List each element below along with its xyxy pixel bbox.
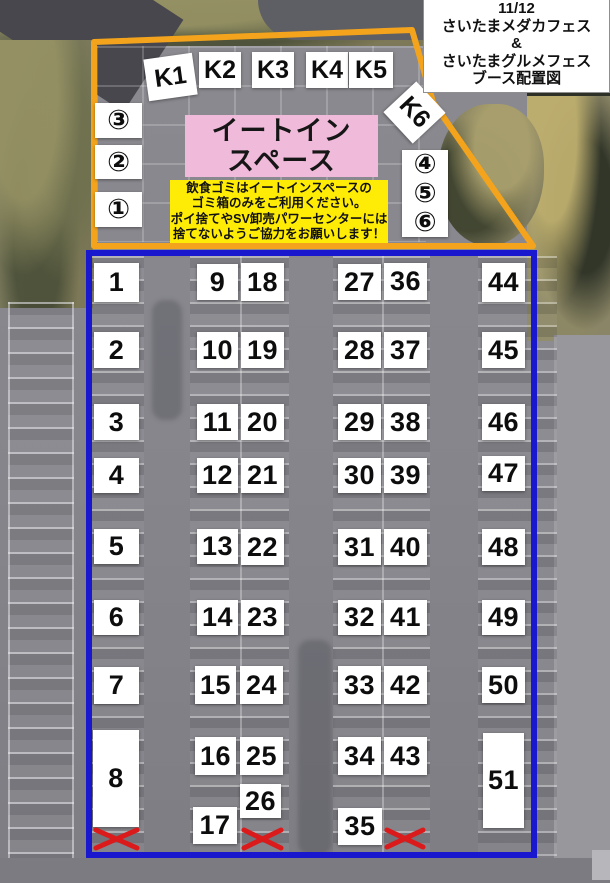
event-name-1: さいたまメダカフェス (442, 18, 592, 36)
booth-26: 26 (240, 784, 281, 818)
closed-x-mark-1 (93, 827, 140, 851)
booth-44: 44 (482, 263, 525, 302)
kitchen-car-spot-3: ③ (95, 103, 142, 138)
booth-48: 48 (482, 529, 525, 565)
booth-38: 38 (384, 404, 427, 440)
kitchen-car-spots-4-5-6: ④ ⑤ ⑥ (402, 150, 448, 237)
booth-27: 27 (338, 264, 381, 300)
booth-42: 42 (384, 666, 427, 704)
car-bottom-right (592, 850, 610, 880)
kitchen-car-spot-2: ② (95, 145, 142, 179)
kitchen-car-spot-4: ④ (414, 150, 437, 179)
booth-8: 8 (93, 730, 139, 827)
booth-24: 24 (240, 666, 283, 704)
booth-20: 20 (241, 404, 284, 440)
booth-1: 1 (94, 263, 139, 302)
booth-47: 47 (482, 456, 525, 491)
booth-15: 15 (195, 666, 236, 704)
booth-4: 4 (94, 458, 139, 493)
booth-13: 13 (197, 529, 238, 564)
booth-32: 32 (338, 600, 381, 635)
event-name-2: さいたまグルメフェス (442, 53, 592, 71)
kiosk-k3: K3 (252, 52, 294, 88)
booth-35: 35 (338, 808, 382, 845)
booth-6: 6 (94, 600, 139, 635)
notice-line: ポイ捨てやSV卸売パワーセンターには (171, 212, 388, 227)
booth-9: 9 (197, 264, 238, 300)
booth-5: 5 (94, 529, 139, 564)
booth-16: 16 (195, 737, 236, 775)
booth-41: 41 (384, 600, 427, 635)
kitchen-car-spot-5: ⑤ (414, 179, 437, 208)
booth-10: 10 (197, 332, 238, 368)
trash-notice: 飲食ゴミはイートインスペースの ゴミ箱のみをご利用ください。 ポイ捨てやSV卸売… (170, 180, 388, 243)
eat-in-line2: スペース (227, 146, 336, 176)
booth-34: 34 (338, 737, 381, 775)
eat-in-line1: イートイン (212, 116, 352, 146)
booth-40: 40 (384, 529, 427, 565)
kiosk-k5: K5 (349, 52, 393, 88)
event-date: 11/12 (498, 0, 535, 18)
booth-30: 30 (338, 458, 381, 493)
booth-3: 3 (94, 404, 139, 440)
booth-36: 36 (384, 263, 427, 300)
booth-46: 46 (482, 404, 525, 440)
notice-line: 捨てないようご協力をお願いします！ (173, 227, 385, 242)
booth-7: 7 (94, 667, 139, 704)
booth-33: 33 (338, 666, 381, 704)
booth-25: 25 (240, 737, 283, 775)
booth-19: 19 (241, 332, 284, 368)
notice-line: ゴミ箱のみをご利用ください。 (191, 196, 366, 211)
booth-49: 49 (482, 600, 525, 635)
booth-14: 14 (197, 600, 238, 635)
booth-layout-map: イートイン スペース 飲食ゴミはイートインスペースの ゴミ箱のみをご利用ください… (0, 0, 610, 883)
booth-31: 31 (338, 529, 381, 565)
booth-17: 17 (193, 807, 237, 844)
booth-12: 12 (197, 458, 238, 493)
notice-line: 飲食ゴミはイートインスペースの (186, 181, 372, 196)
kiosk-k1: K1 (143, 53, 197, 101)
event-amp: & (511, 35, 522, 53)
booth-22: 22 (241, 529, 284, 565)
asphalt-bottom (0, 858, 610, 883)
road-top-center (258, 0, 448, 40)
kiosk-k4: K4 (306, 52, 348, 88)
vegetation-left (0, 40, 93, 308)
booth-2: 2 (94, 332, 139, 368)
booth-45: 45 (482, 332, 525, 368)
booth-51: 51 (483, 733, 524, 828)
booth-50: 50 (482, 667, 525, 703)
closed-x-mark-3 (384, 827, 426, 850)
parking-stalls-left (8, 302, 74, 880)
kitchen-car-spot-6: ⑥ (414, 208, 437, 237)
booth-28: 28 (338, 332, 381, 368)
kitchen-car-spot-1: ① (95, 192, 142, 227)
booth-23: 23 (241, 600, 284, 635)
booth-18: 18 (241, 263, 284, 301)
event-title: 11/12 さいたまメダカフェス & さいたまグルメフェス ブース配置図 (423, 0, 610, 93)
map-caption: ブース配置図 (472, 70, 561, 88)
booth-11: 11 (197, 404, 238, 440)
booth-37: 37 (384, 332, 427, 368)
eat-in-space-label: イートイン スペース (185, 115, 378, 177)
kiosk-k2: K2 (199, 52, 241, 88)
closed-x-mark-2 (241, 827, 284, 851)
path-right (554, 335, 610, 883)
booth-29: 29 (338, 404, 381, 440)
blue-zone-outline (86, 250, 537, 858)
booth-21: 21 (241, 458, 284, 493)
booth-39: 39 (384, 458, 427, 493)
booth-43: 43 (384, 737, 427, 775)
